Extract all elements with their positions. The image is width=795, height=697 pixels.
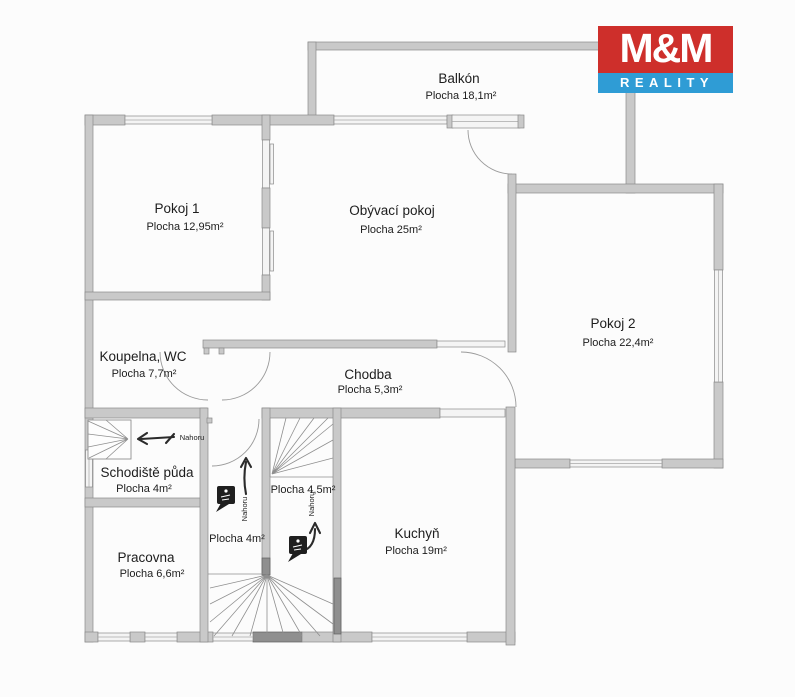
marker-badge-icon [288, 536, 307, 562]
nahoru-label-2: Nahoru [240, 497, 249, 522]
nahoru-arrow-up-1 [245, 462, 247, 494]
exterior-walls [85, 115, 723, 645]
marker-badge-icon [216, 486, 235, 512]
mm-reality-logo: M&M REALITY [598, 26, 733, 93]
floor-plan-page: Balkón Plocha 18,1m² Pokoj 1 Plocha 12,9… [0, 0, 795, 697]
room-area-chodba: Plocha 5,3m² [338, 384, 403, 396]
floor-plan-drawing: Balkón Plocha 18,1m² Pokoj 1 Plocha 12,9… [0, 0, 795, 697]
room-name-koupelna: Koupelna, WC [99, 349, 186, 364]
room-name-pokoj1: Pokoj 1 [154, 201, 199, 216]
nahoru-label-1: Nahoru [180, 433, 205, 442]
room-area-kuchyn: Plocha 19m² [385, 545, 447, 557]
windows [86, 116, 723, 641]
room-area-pokoj2: Plocha 22,4m² [583, 337, 654, 349]
stair-lobby-door-arc [212, 419, 259, 466]
stairs [88, 418, 333, 636]
room-name-chodba: Chodba [344, 367, 392, 382]
room-area-koupelna: Plocha 7,7m² [112, 368, 177, 380]
room-name-obyvaci: Obývací pokoj [349, 203, 435, 218]
wc-door-arc [222, 352, 270, 400]
area-stair-lobby: Plocha 4m² [209, 533, 265, 545]
logo-reality-text: REALITY [598, 73, 733, 93]
room-area-balkon: Plocha 18,1m² [426, 90, 497, 102]
room-name-balkon: Balkón [438, 71, 479, 86]
room-name-pokoj2: Pokoj 2 [590, 316, 635, 331]
nahoru-label-3: Nahoru [307, 492, 316, 517]
room-area-pracovna: Plocha 6,6m² [120, 568, 185, 580]
room-area-obyvaci: Plocha 25m² [360, 224, 422, 236]
room-name-schodiste: Schodiště půda [100, 465, 194, 480]
room-name-kuchyn: Kuchyň [394, 526, 439, 541]
room-area-schodiste: Plocha 4m² [116, 483, 172, 495]
logo-mm-text: M&M [598, 26, 733, 73]
area-stair-mid: Plocha 4,5m² [271, 484, 336, 496]
pokoj2-door-arc [461, 352, 516, 407]
room-area-pokoj1: Plocha 12,95m² [146, 221, 223, 233]
balcony-door-arc [468, 130, 512, 174]
room-name-pracovna: Pracovna [117, 550, 175, 565]
